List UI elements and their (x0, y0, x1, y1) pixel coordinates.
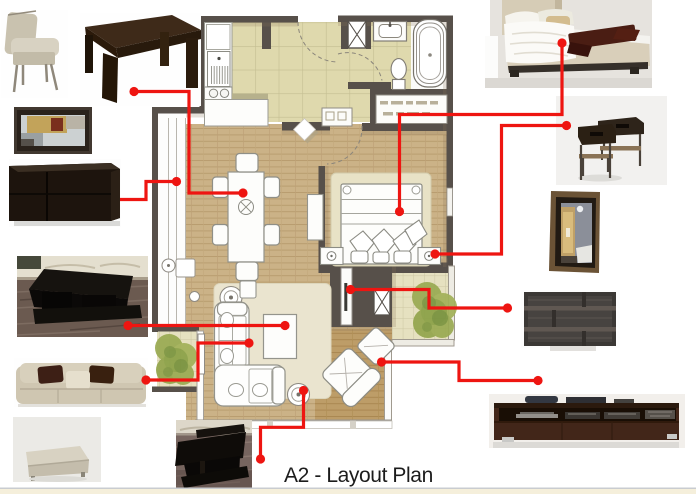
svg-text:A2 - Layout Plan: A2 - Layout Plan (284, 464, 433, 487)
